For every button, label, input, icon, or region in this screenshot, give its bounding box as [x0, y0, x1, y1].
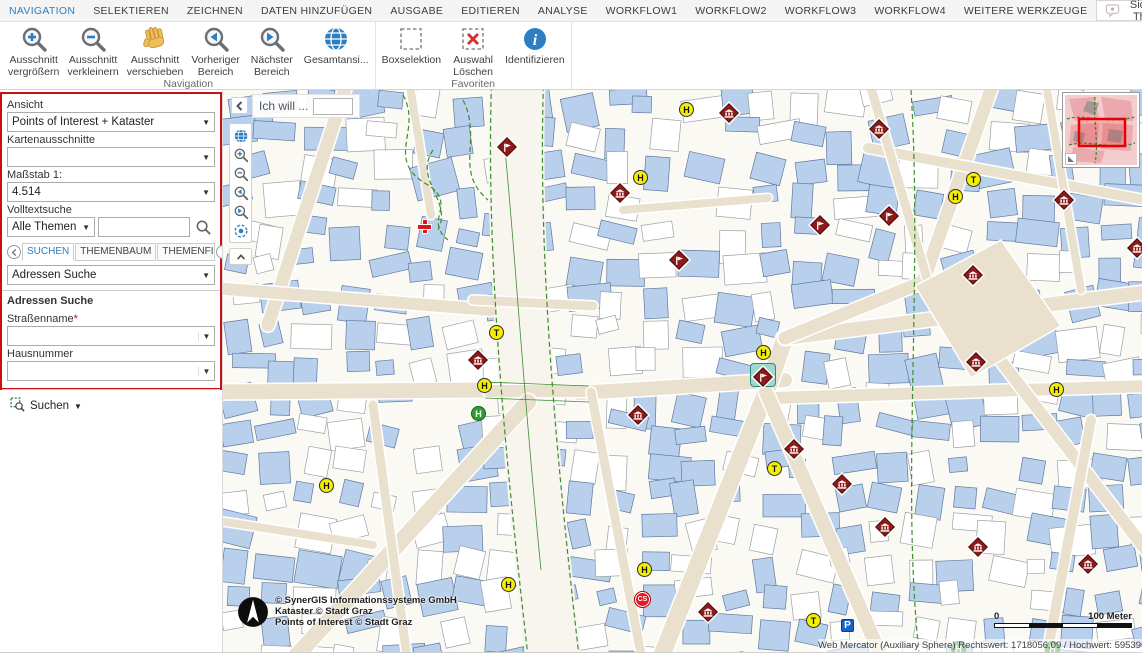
tabs-scroll-left-icon[interactable]: [7, 245, 21, 259]
chevron-down-icon: ▼: [198, 332, 214, 341]
poi-marker-museum[interactable]: [872, 122, 886, 136]
poi-marker-red-cs[interactable]: CS: [635, 592, 650, 607]
tab-suchen[interactable]: SUCHEN: [22, 243, 74, 261]
search-icon[interactable]: [193, 217, 213, 237]
visible-themes-label: Sichtbare Themen: [1126, 0, 1142, 23]
poi-marker-yellow-h[interactable]: H: [637, 562, 652, 577]
chevron-down-icon: ▼: [79, 223, 90, 232]
menu-right-tools: Sichtbare Themen ▾ ?: [1096, 0, 1142, 21]
poi-marker-yellow-h[interactable]: H: [948, 189, 963, 204]
pan-hand-icon: [141, 25, 169, 53]
menu-bar: NAVIGATIONSELEKTIERENZEICHNENDATEN HINZU…: [0, 0, 1142, 22]
menu-item-editieren[interactable]: EDITIEREN: [452, 0, 529, 22]
adressen-suche-title: Adressen Suche: [7, 295, 215, 307]
poi-marker-flag[interactable]: [500, 140, 514, 154]
poi-marker-flag[interactable]: [756, 370, 770, 384]
full-extent-icon[interactable]: [231, 126, 250, 145]
ich-will-input[interactable]: [313, 98, 353, 115]
map-viewport[interactable]: HHTHTHHHHTHHHCSTPHH Ich will ...: [222, 90, 1142, 652]
ribbon-group-favoriten: BoxselektionAuswahlLöscheniIdentifiziere…: [376, 22, 572, 89]
poi-marker-pharmacy-cross[interactable]: [418, 220, 431, 233]
collapse-map-tools-icon[interactable]: [229, 248, 252, 265]
collapse-sidebar-icon[interactable]: [231, 97, 248, 114]
kartenausschnitte-select[interactable]: ▼: [7, 147, 215, 167]
poi-marker-museum[interactable]: [835, 477, 849, 491]
bottom-bar: [0, 652, 1142, 670]
zoom-in-icon[interactable]: [231, 145, 250, 164]
search-tool-panel: Ansicht Points of Interest + Kataster ▼ …: [0, 92, 222, 390]
map-attribution: © SynerGIS Informationssysteme GmbH Kata…: [237, 595, 457, 628]
menu-item-workflow1[interactable]: WORKFLOW1: [597, 0, 687, 22]
poi-marker-museum[interactable]: [878, 520, 892, 534]
strassenname-input[interactable]: [8, 327, 198, 345]
poi-marker-yellow-h[interactable]: H: [319, 478, 334, 493]
suchdienst-select[interactable]: Adressen Suche ▼: [7, 265, 215, 285]
poi-marker-flag[interactable]: [813, 218, 827, 232]
visible-themes-dropdown[interactable]: Sichtbare Themen ▾: [1096, 0, 1142, 21]
poi-marker-flag[interactable]: [672, 253, 686, 267]
panel-tabs: SUCHENTHEMENBAUMTHEMENFILTER: [7, 242, 215, 261]
poi-marker-yellow-h[interactable]: H: [1049, 382, 1064, 397]
poi-marker-museum[interactable]: [701, 605, 715, 619]
ich-will-label: Ich will ...: [259, 99, 308, 113]
auswahl-l-schen-button[interactable]: AuswahlLöschen: [445, 22, 501, 78]
required-asterisk: *: [74, 313, 78, 325]
poi-marker-parking[interactable]: P: [841, 619, 854, 632]
clear-selection-icon: [459, 25, 487, 53]
chevron-down-icon: ▼: [199, 188, 210, 197]
copyright-text: © SynerGIS Informationssysteme GmbH Kata…: [275, 595, 457, 628]
poi-marker-yellow-h[interactable]: H: [633, 170, 648, 185]
volltextsuche-label: Volltextsuche: [7, 204, 215, 216]
main-menu: NAVIGATIONSELEKTIERENZEICHNENDATEN HINZU…: [0, 0, 1096, 22]
poi-marker-museum[interactable]: [471, 353, 485, 367]
ich-will-widget: Ich will ...: [252, 94, 360, 118]
menu-item-workflow3[interactable]: WORKFLOW3: [776, 0, 866, 22]
overview-collapse-icon[interactable]: [1065, 153, 1077, 165]
strassenname-combo[interactable]: ▼: [7, 326, 215, 346]
poi-marker-yellow-h[interactable]: H: [501, 577, 516, 592]
hausnummer-label: Hausnummer: [7, 348, 215, 360]
menu-item-weitere-werkzeuge[interactable]: WEITERE WERKZEUGE: [955, 0, 1097, 22]
poi-marker-museum[interactable]: [966, 268, 980, 282]
identify-icon: i: [521, 25, 549, 53]
poi-marker-flag[interactable]: [882, 209, 896, 223]
kartenausschnitte-label: Kartenausschnitte: [7, 134, 215, 146]
menu-item-workflow4[interactable]: WORKFLOW4: [865, 0, 955, 22]
poi-marker-yellow-h[interactable]: H: [679, 102, 694, 117]
poi-marker-layer: HHTHTHHHHTHHHCSTPHH: [223, 90, 1142, 652]
hausnummer-input[interactable]: [8, 362, 198, 380]
left-sidebar: Ansicht Points of Interest + Kataster ▼ …: [0, 90, 222, 652]
full-extent-icon: [322, 25, 350, 53]
hausnummer-combo[interactable]: ▼: [7, 361, 215, 381]
next-extent-icon: [258, 25, 286, 53]
menu-item-zeichnen[interactable]: ZEICHNEN: [178, 0, 252, 22]
poi-marker-green-h[interactable]: H: [471, 406, 486, 421]
gesamtansi-button[interactable]: Gesamtansi...: [300, 22, 373, 67]
poi-marker-museum[interactable]: [1057, 193, 1071, 207]
scale-bar: 0 100 Meter: [994, 611, 1132, 628]
poi-marker-museum[interactable]: [969, 355, 983, 369]
themen-select[interactable]: Alle Themen ▼: [7, 217, 95, 237]
boxselektion-button[interactable]: Boxselektion: [378, 22, 446, 67]
overview-map[interactable]: [1062, 92, 1140, 168]
strassenname-label: Straßenname*: [7, 313, 215, 325]
ansicht-select[interactable]: Points of Interest + Kataster ▼: [7, 112, 215, 132]
vorheriger-bereich-button[interactable]: VorherigerBereich: [187, 22, 243, 78]
menu-item-navigation[interactable]: NAVIGATION: [0, 0, 84, 22]
next-extent-icon[interactable]: [231, 202, 250, 221]
identifizieren-button[interactable]: iIdentifizieren: [501, 22, 569, 67]
chevron-down-icon: ▼: [199, 153, 210, 162]
tab-themenbaum[interactable]: THEMENBAUM: [75, 243, 156, 261]
ausschnitt-vergr-ern-button[interactable]: Ausschnittvergrößern: [4, 22, 63, 78]
tab-themenfilter[interactable]: THEMENFILTER: [157, 243, 215, 261]
poi-marker-yellow-t[interactable]: T: [767, 461, 782, 476]
zoom-in-icon: [20, 25, 48, 53]
gis-application: NAVIGATIONSELEKTIERENZEICHNENDATEN HINZU…: [0, 0, 1142, 670]
poi-marker-museum[interactable]: [1081, 557, 1095, 571]
suchen-button[interactable]: Suchen ▼: [10, 397, 82, 415]
poi-marker-yellow-t[interactable]: T: [966, 172, 981, 187]
poi-marker-museum[interactable]: [1130, 241, 1142, 255]
menu-item-ausgabe[interactable]: AUSGABE: [381, 0, 452, 22]
box-select-icon: [397, 25, 425, 53]
ausschnitt-verschieben-button[interactable]: Ausschnittverschieben: [123, 22, 188, 78]
volltextsuche-input[interactable]: [98, 217, 190, 237]
poi-marker-yellow-h[interactable]: H: [756, 345, 771, 360]
poi-marker-museum[interactable]: [787, 442, 801, 456]
chevron-down-icon: ▼: [198, 367, 214, 376]
ansicht-label: Ansicht: [7, 99, 215, 111]
poi-marker-museum[interactable]: [613, 186, 627, 200]
menu-item-workflow2[interactable]: WORKFLOW2: [686, 0, 776, 22]
n-chster-bereich-button[interactable]: NächsterBereich: [244, 22, 300, 78]
zoom-out-icon[interactable]: [231, 164, 250, 183]
poi-marker-museum[interactable]: [722, 106, 736, 120]
scale-label: 100 Meter: [1088, 611, 1132, 622]
menu-item-analyse[interactable]: ANALYSE: [529, 0, 597, 22]
chevron-down-icon: ▼: [199, 118, 210, 127]
scale-zero: 0: [994, 611, 999, 622]
poi-marker-museum[interactable]: [971, 540, 985, 554]
ribbon-group-navigation: AusschnittvergrößernAusschnittverkleiner…: [2, 22, 376, 89]
menu-item-selektieren[interactable]: SELEKTIEREN: [84, 0, 178, 22]
status-coordinates: Web Mercator (Auxiliary Sphere) Rechtswe…: [818, 639, 1142, 652]
chevron-down-icon: ▼: [74, 402, 82, 411]
comment-bubble-icon: [1105, 2, 1120, 19]
prev-extent-icon: [202, 25, 230, 53]
massstab-select[interactable]: 4.514 ▼: [7, 182, 215, 202]
poi-marker-yellow-t[interactable]: T: [489, 325, 504, 340]
chevron-down-icon: ▼: [199, 271, 210, 280]
ribbon-toolbar: AusschnittvergrößernAusschnittverkleiner…: [0, 22, 1142, 90]
ausschnitt-verkleinern-button[interactable]: Ausschnittverkleinern: [63, 22, 122, 78]
search-selection-icon: [10, 397, 25, 415]
poi-marker-museum[interactable]: [631, 408, 645, 422]
previous-extent-icon[interactable]: [231, 183, 250, 202]
locate-position-icon[interactable]: [231, 221, 250, 240]
poi-marker-yellow-t[interactable]: T: [806, 613, 821, 628]
massstab-label: Maßstab 1:: [7, 169, 215, 181]
zoom-out-icon: [79, 25, 107, 53]
menu-item-daten-hinzuf-gen[interactable]: DATEN HINZUFÜGEN: [252, 0, 381, 22]
map-tools: [229, 123, 252, 243]
poi-marker-yellow-h[interactable]: H: [477, 378, 492, 393]
svg-text:i: i: [533, 32, 538, 49]
north-arrow-logo: [237, 596, 269, 628]
